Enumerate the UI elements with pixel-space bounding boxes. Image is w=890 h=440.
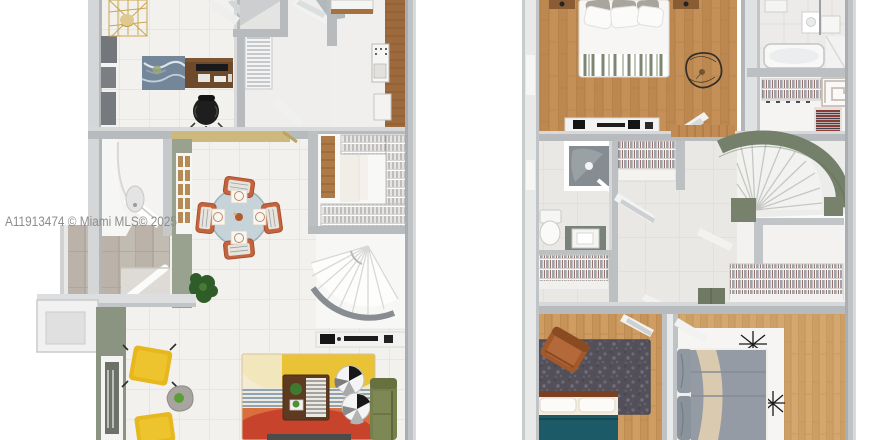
svg-text:A11913474 © Miami MLS© 2025: A11913474 © Miami MLS© 2025 xyxy=(5,214,177,229)
